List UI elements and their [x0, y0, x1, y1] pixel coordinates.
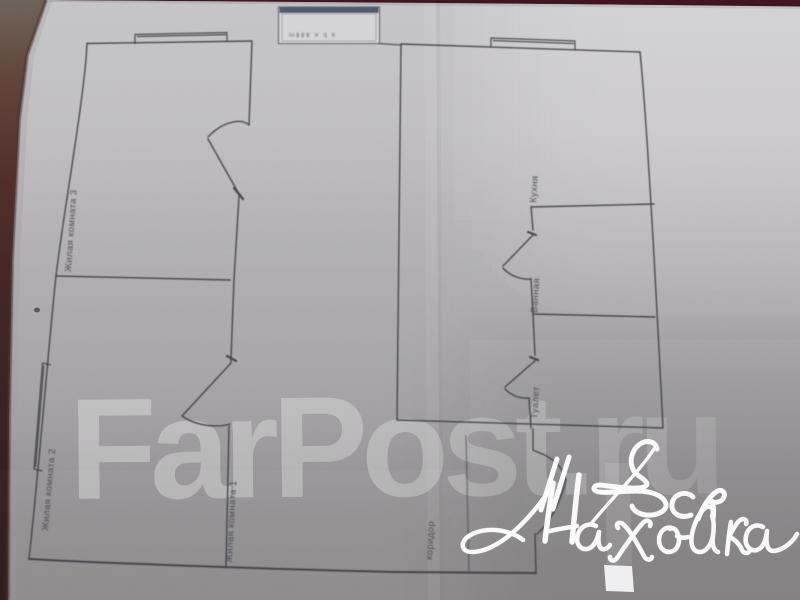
svg-text:коридор: коридор: [424, 521, 437, 561]
svg-text:ɯɸɸϕ ϰ ɋ ʙ: ɯɸɸϕ ϰ ɋ ʙ: [289, 32, 337, 39]
svg-text:Кухня: Кухня: [528, 175, 541, 203]
svg-text:Туалет: Туалет: [529, 386, 542, 419]
